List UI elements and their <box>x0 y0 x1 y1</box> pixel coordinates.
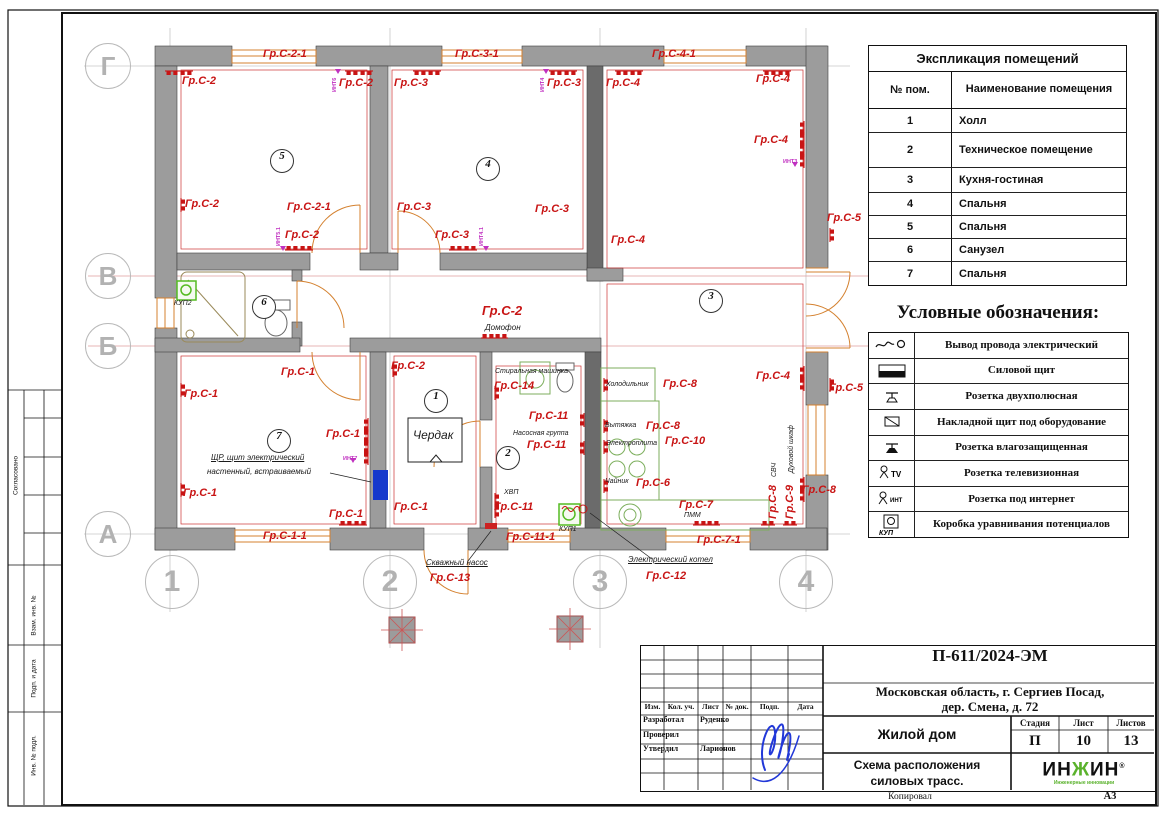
columns <box>381 608 591 651</box>
legend-row: TVРозетка телевизионная <box>869 460 1128 486</box>
legend-row: Розетка влагозащищенная <box>869 435 1128 461</box>
room-number: 6 <box>869 239 952 261</box>
strip-podp-label: Подп. и дата <box>31 639 38 719</box>
strip-inv-label: Инв. № подл. <box>31 716 38 796</box>
socket-wp-icon <box>869 436 915 461</box>
legend-label: Розетка двухполюсная <box>915 384 1128 409</box>
socket-icon <box>463 246 477 250</box>
doc-number: П-611/2024-ЭМ <box>823 646 1157 683</box>
socket-icon <box>353 521 367 525</box>
tb-role-label: Утвердил <box>643 744 697 758</box>
socket-icon <box>495 386 499 400</box>
room-name: Спальня <box>952 193 1126 215</box>
object-name: Жилой дом <box>823 716 1011 753</box>
socket-icon <box>783 521 797 525</box>
copied-by-label: Копировал <box>855 792 965 802</box>
toilet-icon <box>262 300 290 336</box>
socket-layer <box>165 71 834 525</box>
socket-icon <box>800 366 804 380</box>
legend-row: КУПКоробка уравнивания потенциалов <box>869 511 1128 537</box>
legend-label: Вывод провода электрический <box>915 333 1128 358</box>
legend-label: Розетка влагозащищенная <box>915 436 1128 461</box>
explication-row: 4Спальня <box>869 192 1126 215</box>
explication-col2-header: Наименование помещения <box>952 72 1126 108</box>
socket-icon <box>604 440 608 454</box>
sheet-value: 10 <box>1059 730 1108 753</box>
socket-icon <box>449 246 463 250</box>
socket-tv-icon: TV <box>869 461 915 486</box>
legend-label: Коробка уравнивания потенциалов <box>915 512 1128 537</box>
surface-panel-icon <box>869 410 915 435</box>
socket-icon <box>800 143 804 157</box>
socket-icon <box>359 71 373 75</box>
socket-icon <box>629 71 643 75</box>
socket-icon <box>830 378 834 392</box>
legend-table: Вывод провода электрическийСиловой щитРо… <box>868 332 1129 538</box>
socket-icon <box>615 71 629 75</box>
socket-icon <box>604 479 608 493</box>
kup-box-icon: КУП <box>869 512 915 537</box>
room-number: 5 <box>869 216 952 238</box>
legend-label: Накладной щит под оборудование <box>915 410 1128 435</box>
logo-tagline: Инженерные инновации <box>1011 780 1157 786</box>
drawing-title: Схема расположения силовых трасс. <box>823 753 1011 793</box>
legend-label: Розетка телевизионная <box>915 461 1128 486</box>
room-number: 1 <box>869 109 952 132</box>
explication-row: 5Спальня <box>869 215 1126 238</box>
socket-icon <box>777 71 791 75</box>
socket-icon <box>800 488 804 502</box>
address-line2: дер. Смена, д. 72 <box>823 699 1157 715</box>
electrical-panel-icon <box>373 470 388 500</box>
drawing-title-line1: Схема расположения <box>823 757 1011 773</box>
socket-icon <box>693 521 707 525</box>
walls <box>155 46 828 550</box>
socket-icon <box>339 521 353 525</box>
socket-icon <box>580 441 584 455</box>
tb-role-name <box>700 730 750 744</box>
room-name: Кухня-гостиная <box>952 168 1126 192</box>
socket-icon <box>427 71 441 75</box>
well-pump-feed <box>485 523 497 529</box>
explication-col1-header: № пом. <box>869 72 952 108</box>
tb-role-name: Ларионов <box>700 744 750 758</box>
tb-col-header: Лист <box>698 702 723 715</box>
socket-icon <box>800 477 804 491</box>
legend-row: Накладной щит под оборудование <box>869 409 1128 435</box>
socket-icon <box>830 228 834 242</box>
tb-role-label: Проверил <box>643 730 697 744</box>
socket-icon <box>393 363 397 377</box>
power-panel-icon <box>869 359 915 384</box>
socket-int-icon: ИНТ <box>869 487 915 512</box>
socket-icon <box>179 71 193 75</box>
socket-icon <box>763 71 777 75</box>
svg-text:ИНТ: ИНТ <box>890 498 903 504</box>
legend-row: Розетка двухполюсная <box>869 383 1128 409</box>
signature <box>745 698 807 786</box>
socket-icon <box>181 383 185 397</box>
attic-hatch <box>408 418 462 462</box>
socket-icon <box>800 154 804 168</box>
stage-value: П <box>1011 730 1059 753</box>
tb-role-label: Разработал <box>643 715 697 729</box>
socket-icon <box>604 419 608 433</box>
room-name: Спальня <box>952 216 1126 238</box>
room-name: Санузел <box>952 239 1126 261</box>
socket-icon <box>706 521 720 525</box>
socket-icon <box>800 121 804 135</box>
wiring-runs <box>181 70 803 524</box>
title-block: П-611/2024-ЭМ Московская область, г. Сер… <box>640 645 1156 792</box>
room-number: 4 <box>869 193 952 215</box>
wire-exit-icon <box>869 333 915 358</box>
explication-header: № пом. Наименование помещения <box>869 72 1126 109</box>
format-label: А3 <box>1088 791 1132 802</box>
strip-agreed-label: Согласовано <box>13 436 20 516</box>
socket-icon <box>285 246 299 250</box>
washing-machine-icon <box>520 362 550 394</box>
socket-icon <box>800 132 804 146</box>
stage-label: Стадия <box>1011 716 1059 730</box>
sheet-label: Лист <box>1059 716 1108 730</box>
kitchen-counters <box>601 368 769 530</box>
legend-row: ИНТРозетка под интернет <box>869 486 1128 512</box>
socket-icon <box>800 377 804 391</box>
tb-role-name: Руденко <box>700 715 750 729</box>
address-line1: Московская область, г. Сергиев Посад, <box>823 684 1157 700</box>
socket-icon <box>495 504 499 518</box>
socket-icon <box>345 71 359 75</box>
room-number: 3 <box>869 168 952 192</box>
socket-icon <box>494 334 508 338</box>
explication-row: 7Спальня <box>869 261 1126 285</box>
company-logo: ИНЖИН® Инженерные инновации <box>1011 753 1157 793</box>
socket-icon <box>604 378 608 392</box>
socket-icon <box>580 413 584 427</box>
drawing-title-line2: силовых трасс. <box>823 773 1011 789</box>
legend-label: Розетка под интернет <box>915 487 1128 512</box>
socket-icon <box>563 71 577 75</box>
explication-row: 6Санузел <box>869 238 1126 261</box>
socket-icon <box>181 198 185 212</box>
room-name: Холл <box>952 109 1126 132</box>
room-number: 2 <box>869 133 952 167</box>
room-explication-table: Экспликация помещений № пом. Наименовани… <box>868 45 1127 286</box>
svg-text:КУП: КУП <box>879 530 894 536</box>
tb-col-header: Кол. уч. <box>664 702 698 715</box>
socket-icon <box>413 71 427 75</box>
room-number: 7 <box>869 262 952 285</box>
tb-col-header: Изм. <box>641 702 664 715</box>
sheets-label: Листов <box>1108 716 1154 730</box>
room-name: Спальня <box>952 262 1126 285</box>
drawing-sheet: Согласовано Взам. инв. № Подп. и дата Ин… <box>0 0 1166 816</box>
legend-row: Вывод провода электрический <box>869 333 1128 358</box>
socket-icon <box>549 71 563 75</box>
explication-row: 3Кухня-гостиная <box>869 167 1126 192</box>
sheets-value: 13 <box>1108 730 1154 753</box>
socket-2p-icon <box>869 384 915 409</box>
socket-icon <box>299 246 313 250</box>
svg-text:TV: TV <box>891 470 902 479</box>
logo-text: ИНЖИН® <box>1011 757 1157 780</box>
room-name: Техническое помещение <box>952 133 1126 167</box>
explication-title: Экспликация помещений <box>869 46 1126 72</box>
legend-title: Условные обозначения: <box>866 302 1130 324</box>
explication-row: 1Холл <box>869 109 1126 132</box>
legend-row: Силовой щит <box>869 358 1128 384</box>
socket-icon <box>761 521 775 525</box>
socket-icon <box>481 334 495 338</box>
socket-icon <box>495 493 499 507</box>
legend-label: Силовой щит <box>915 359 1128 384</box>
socket-icon <box>181 483 185 497</box>
explication-row: 2Техническое помещение <box>869 132 1126 167</box>
tech-toilet-icon <box>556 363 574 392</box>
